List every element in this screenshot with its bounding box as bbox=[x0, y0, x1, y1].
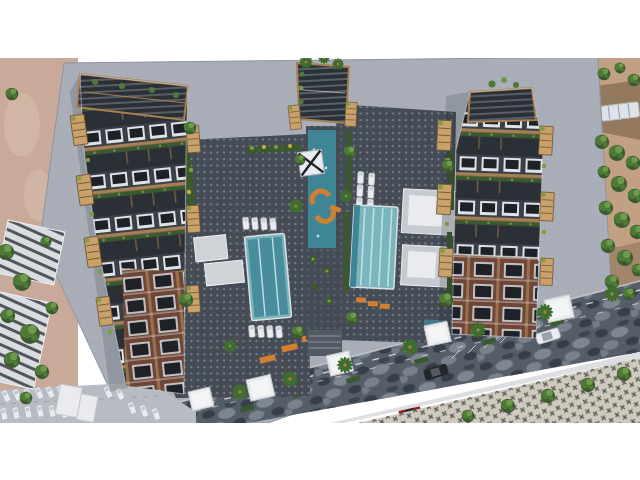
entry-steps bbox=[308, 330, 342, 356]
tree bbox=[581, 378, 595, 392]
tree bbox=[501, 399, 515, 413]
balcony-pod bbox=[436, 120, 452, 151]
tree bbox=[541, 389, 555, 403]
central-core-pavilion bbox=[288, 63, 357, 130]
aerial-render-screenshot: Top-down 3D architectural rendering of a… bbox=[0, 0, 640, 480]
brick-lower-floors bbox=[122, 268, 184, 394]
tree bbox=[617, 367, 631, 381]
left-courtyard-lap-pool bbox=[244, 233, 291, 320]
tree bbox=[462, 410, 475, 423]
balcony-pod bbox=[345, 102, 357, 127]
right-courtyard-pool bbox=[350, 205, 398, 289]
balcony-pod bbox=[540, 258, 554, 286]
roof-pergola bbox=[468, 88, 536, 122]
balcony-pod bbox=[186, 205, 200, 233]
balcony-pod bbox=[439, 248, 454, 277]
aerial-render: Top-down 3D architectural rendering of a… bbox=[0, 0, 640, 480]
balcony-pod bbox=[540, 192, 555, 221]
balcony-pod bbox=[436, 184, 452, 215]
balcony-pod bbox=[539, 126, 554, 155]
balcony-pod bbox=[288, 105, 302, 130]
brick-lower-floors bbox=[452, 254, 538, 338]
